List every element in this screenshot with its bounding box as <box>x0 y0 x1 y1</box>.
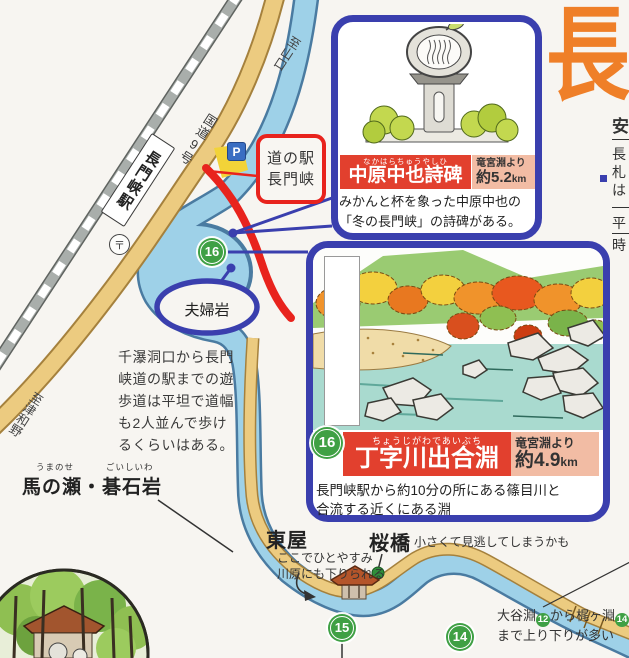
meotoiwa-label: 夫婦岩 <box>172 299 242 320</box>
callout1-distance-unit: km <box>512 174 526 185</box>
marker-15: 15 <box>328 614 356 642</box>
azumaya-note2: 川原にも下りられる <box>277 567 385 581</box>
callout2-name: 丁字川出合淵 <box>355 446 499 471</box>
marker-14-number: 14 <box>448 625 472 649</box>
edge-frag-4: 平 <box>612 216 629 234</box>
edge-frag-1: 長 <box>612 147 629 161</box>
callout2-name-band: ちょうじがわであいぶち 丁字川出合淵 <box>343 432 511 476</box>
callout2-distance-unit: km <box>560 455 577 469</box>
circled-14: 14 <box>615 613 629 627</box>
callout2-marker-number: 16 <box>313 429 340 456</box>
roadside-station-line2: 長門峡 <box>267 169 315 190</box>
poi-dot <box>229 229 238 238</box>
poi-dot <box>227 264 236 273</box>
parking-icon: P <box>227 142 246 161</box>
monument-illustration <box>344 24 530 152</box>
otanibuchi-note-part3: まで上り下りが多い <box>497 628 614 643</box>
callout2-distance: 竜宮淵より 約4.9km <box>511 432 599 476</box>
roadside-station-box: 道の駅 長門峡 <box>256 134 326 204</box>
callout-poem-monument: なかはらちゅうやしひ 中原中也詩碑 竜宮淵より 約5.2km みかんと杯を象った… <box>331 15 542 240</box>
edge-frag-3: は <box>612 183 629 208</box>
callout2-distance-value: 約4.9 <box>515 450 560 471</box>
legend-dot <box>600 175 607 182</box>
marker-16: 16 <box>198 238 226 266</box>
callout1-distance: 竜宮淵より 約5.2km <box>472 155 535 189</box>
callout2-marker-16: 16 <box>311 427 343 459</box>
blank-label-box <box>324 256 360 426</box>
marker-16-number: 16 <box>200 240 224 264</box>
roadside-station-line1: 道の駅 <box>267 148 315 169</box>
callout1-name-band: なかはらちゅうやしひ 中原中也詩碑 <box>340 155 471 189</box>
umanose-label: 馬の瀬・碁石岩 <box>22 472 162 499</box>
marker-14: 14 <box>446 623 474 651</box>
callout2-desc-line2: 合流する近くにある淵 <box>316 502 451 517</box>
chomonkyo-map: 長門峡駅 〒 国道9号 至山口 至津和野 P 道の駅 長門峡 16 15 14 … <box>0 0 629 658</box>
sakurabashi-note: 小さくて見逃してしまうかも <box>414 534 569 550</box>
forest-vignette <box>0 568 154 658</box>
callout1-desc-line1: みかんと杯を象った中原中也の <box>339 194 521 209</box>
post-office-icon: 〒 <box>109 234 130 255</box>
edge-frag-0: 安 <box>612 118 629 140</box>
callout1-name: 中原中也詩碑 <box>348 166 462 186</box>
otanibuchi-note-part1: 大谷淵 <box>497 608 536 623</box>
page-title: 長門峡 <box>546 4 629 106</box>
callout2-distance-label: 竜宮淵より <box>515 436 599 450</box>
edge-text-fragments: 安 長 札 は 平 時 <box>612 118 629 252</box>
callout2-desc-line1: 長門峡駅から約10分の所にある篠目川と <box>316 483 561 498</box>
otanibuchi-note-part2: から梶ヶ淵 <box>550 608 615 623</box>
edge-frag-2: 札 <box>612 165 629 179</box>
otanibuchi-note: 大谷淵12から梶ヶ淵14 まで上り下りが多い <box>497 607 629 644</box>
callout-chojigawa: 16 ちょうじがわであいぶち 丁字川出合淵 竜宮淵より 約4.9km 長門峡駅か… <box>306 241 610 522</box>
azumaya-label: 東屋 <box>266 524 308 553</box>
walkway-note: 千瀑洞口から長門峡道の駅までの遊歩道は平坦で道幅も2人並んで歩けるくらいはある。 <box>118 346 238 456</box>
callout1-distance-value: 約5.2 <box>476 169 512 186</box>
edge-frag-5: 時 <box>612 238 629 252</box>
marker-15-number: 15 <box>330 616 354 640</box>
sakurabashi-label: 桜橋 <box>369 527 411 556</box>
circled-12: 12 <box>536 613 550 627</box>
callout1-desc-line2: 「冬の長門峡」の詩碑がある。 <box>339 214 521 229</box>
azumaya-note1: ここでひとやすみ <box>277 551 373 565</box>
